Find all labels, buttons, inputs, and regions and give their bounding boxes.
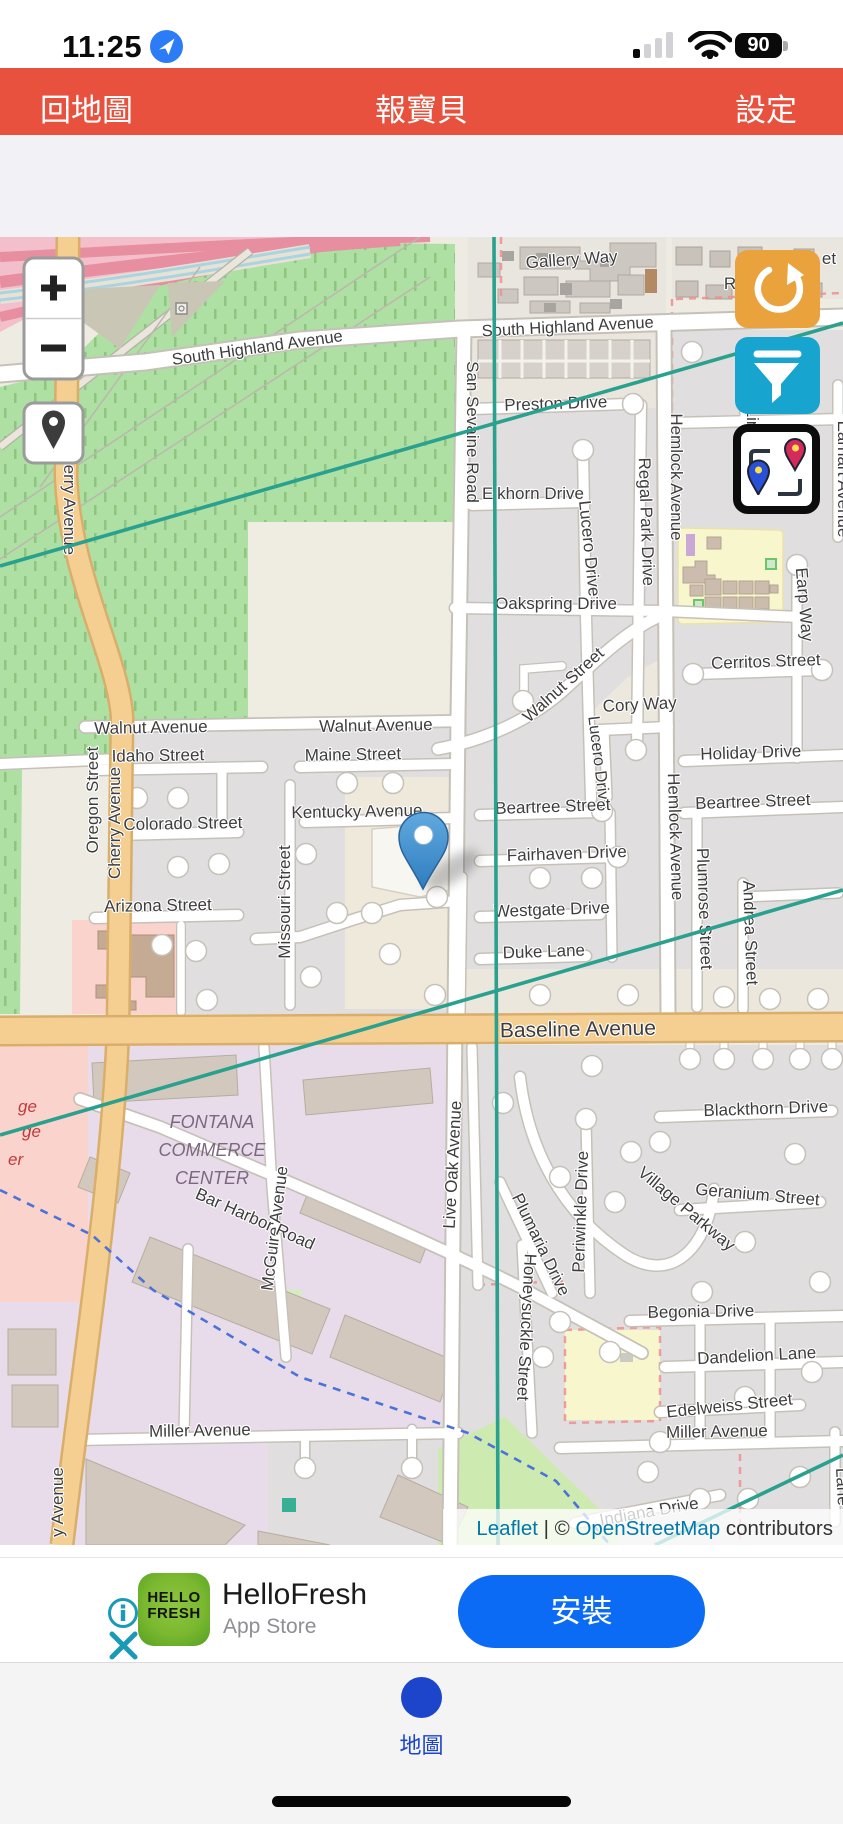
svg-text:Beartree Street: Beartree Street xyxy=(695,790,811,813)
svg-text:Missouri Street: Missouri Street xyxy=(275,845,294,959)
svg-text:Walnut Avenue: Walnut Avenue xyxy=(94,717,208,738)
svg-text:Kentucky Avenue: Kentucky Avenue xyxy=(291,801,422,822)
svg-text:FONTANA: FONTANA xyxy=(170,1112,255,1132)
svg-text:Earhart Avenue: Earhart Avenue xyxy=(834,421,843,538)
svg-text:Oregon Street: Oregon Street xyxy=(83,746,102,853)
svg-text:Cerritos Street: Cerritos Street xyxy=(711,650,821,673)
svg-text:Baseline Avenue: Baseline Avenue xyxy=(500,1017,656,1043)
svg-text:COMMERCE: COMMERCE xyxy=(159,1140,267,1160)
svg-text:Idaho Street: Idaho Street xyxy=(111,745,204,766)
svg-text:Maine Street: Maine Street xyxy=(305,744,402,765)
svg-text:et: et xyxy=(822,249,836,268)
svg-text:Walnut Avenue: Walnut Avenue xyxy=(319,715,433,736)
svg-text:Westgate Drive: Westgate Drive xyxy=(494,898,610,921)
svg-text:Arizona Street: Arizona Street xyxy=(104,895,212,916)
svg-text:Colorado Street: Colorado Street xyxy=(123,813,243,834)
svg-text:Cherry Avenue: Cherry Avenue xyxy=(105,767,124,879)
svg-text:Hemlock Avenue: Hemlock Avenue xyxy=(667,413,686,540)
svg-text:Holiday Drive: Holiday Drive xyxy=(700,741,802,764)
svg-text:Begonia Drive: Begonia Drive xyxy=(647,1301,754,1322)
svg-text:R: R xyxy=(724,274,736,293)
svg-text:y Avenue: y Avenue xyxy=(48,1467,67,1537)
svg-text:Beartree Street: Beartree Street xyxy=(495,795,611,818)
svg-text:ge: ge xyxy=(18,1097,37,1116)
svg-text:er: er xyxy=(8,1150,24,1169)
svg-text:CENTER: CENTER xyxy=(175,1168,249,1188)
svg-text:Duke Lane: Duke Lane xyxy=(502,941,585,963)
svg-text:Cory Way: Cory Way xyxy=(602,693,677,716)
svg-text:Miller Avenue: Miller Avenue xyxy=(666,1421,768,1442)
svg-text:Oakspring Drive: Oakspring Drive xyxy=(495,594,617,613)
svg-text:Andrea Street: Andrea Street xyxy=(739,880,762,986)
svg-text:Elkhorn Drive: Elkhorn Drive xyxy=(482,484,584,503)
svg-text:Leaflet | © OpenStreetMap cont: Leaflet | © OpenStreetMap contributors xyxy=(476,1517,833,1540)
svg-text:Miller Avenue: Miller Avenue xyxy=(149,1420,251,1441)
